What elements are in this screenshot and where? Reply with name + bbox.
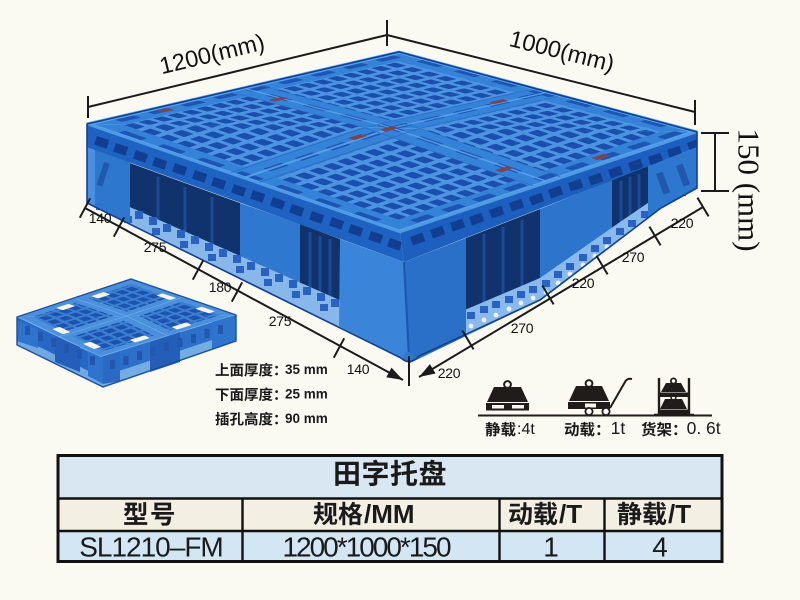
svg-text:220: 220 [438,365,461,381]
svg-text:140: 140 [347,361,370,377]
svg-text:4: 4 [652,532,668,563]
svg-text:220: 220 [671,215,694,231]
svg-text:220: 220 [572,275,595,291]
svg-text:90 mm: 90 mm [285,411,328,426]
svg-text:1200(mm): 1200(mm) [157,29,267,79]
svg-text:1200*1000*150: 1200*1000*150 [282,532,451,563]
svg-text:1t: 1t [611,418,626,438]
svg-text:180: 180 [209,279,232,295]
svg-text:275: 275 [144,239,167,255]
svg-text:270: 270 [511,320,534,336]
svg-text:35 mm: 35 mm [285,362,328,377]
svg-text:0. 6t: 0. 6t [687,418,721,438]
svg-text:270: 270 [622,249,645,265]
svg-text:150 (mm): 150 (mm) [732,128,767,251]
svg-text:/T: /T [668,499,691,529]
svg-text:25 mm: 25 mm [285,387,328,402]
svg-text:1: 1 [543,532,559,563]
svg-text:/MM: /MM [364,499,415,529]
svg-text:275: 275 [269,313,292,329]
svg-text:140: 140 [89,210,112,226]
svg-text::4t: :4t [517,421,535,438]
svg-text:/T: /T [559,499,582,529]
svg-text:SL1210–FM: SL1210–FM [79,532,223,563]
